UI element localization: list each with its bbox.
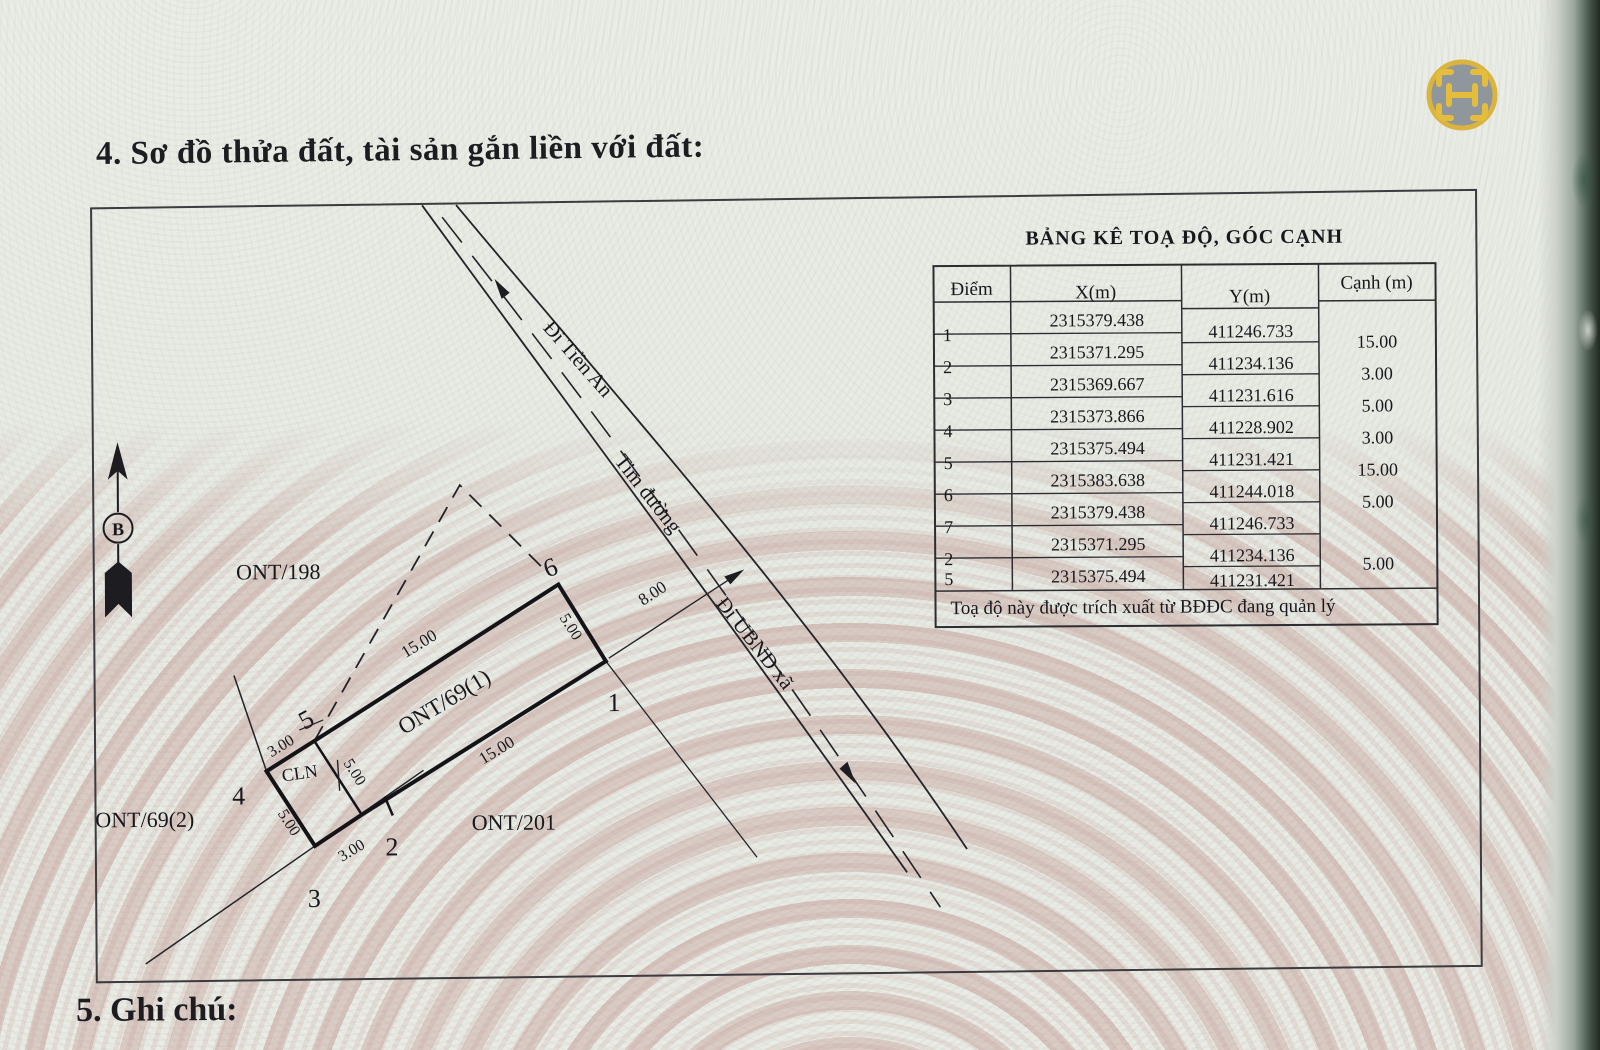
vertex-6: 6 bbox=[539, 552, 561, 584]
parcel-label-ont69-1: ONT/69(1) bbox=[394, 664, 495, 739]
cell-diem: 6 bbox=[944, 485, 953, 505]
cell-y: 411246.733 bbox=[1210, 513, 1295, 534]
vertex-4: 4 bbox=[232, 781, 245, 810]
photo-right-edge bbox=[1538, 0, 1600, 1050]
cell-y: 411231.421 bbox=[1210, 570, 1295, 591]
compass-feather-icon bbox=[105, 562, 131, 616]
vertex-3: 3 bbox=[308, 884, 321, 913]
edge-length: 5.00 bbox=[1362, 395, 1394, 415]
road-label-di-ubnd-xa: Đi UBND xã bbox=[711, 592, 799, 694]
col-header-diem: Điểm bbox=[950, 279, 993, 300]
table-title: BẢNG KÊ TOẠ ĐỘ, GÓC CẠNH bbox=[1025, 224, 1343, 250]
dim-side-5-6: 15.00 bbox=[398, 626, 441, 662]
cell-y: 411228.902 bbox=[1209, 417, 1294, 438]
table-note: Toạ độ này được trích xuất từ BĐĐC đang … bbox=[950, 596, 1336, 619]
dim-side-3-4: 5.00 bbox=[274, 806, 303, 839]
cell-x: 2315371.295 bbox=[1050, 342, 1145, 363]
col-header-x: X(m) bbox=[1075, 282, 1116, 303]
cell-diem: 3 bbox=[943, 389, 952, 409]
scanned-land-certificate-page: 4. Sơ đồ thửa đất, tài sản gắn liền với … bbox=[0, 0, 1600, 1050]
cell-diem: 2 bbox=[944, 549, 953, 569]
table-row: 4 2315373.866 411228.902 bbox=[943, 405, 1294, 441]
table-row: 3 2315369.667 411231.616 bbox=[943, 373, 1294, 409]
cell-y: 411246.733 bbox=[1208, 321, 1293, 342]
table-row: 7 2315379.438 411246.733 bbox=[944, 501, 1295, 537]
road-right-edge bbox=[456, 202, 967, 852]
table-body: 1 2315379.438 411246.733 2 2315371.295 4… bbox=[943, 309, 1295, 592]
table-row: 6 2315383.638 411244.018 bbox=[944, 469, 1295, 505]
compass-north-label: B bbox=[112, 519, 124, 539]
edge-length: 15.00 bbox=[1357, 459, 1398, 479]
dim-setback: 8.00 bbox=[635, 577, 670, 609]
col-header-canh: Cạnh (m) bbox=[1340, 272, 1412, 293]
cell-x: 2315379.438 bbox=[1049, 310, 1144, 331]
cell-y: 411231.421 bbox=[1209, 449, 1294, 470]
parcel-label-ont198: ONT/198 bbox=[236, 559, 320, 585]
parcel-diagram: B bbox=[0, 0, 1600, 1050]
table-row: 1 2315379.438 411246.733 bbox=[943, 309, 1294, 345]
setback-dim-line bbox=[608, 577, 732, 658]
parcel-label-ont69-2: ONT/69(2) bbox=[95, 807, 194, 833]
road-label-di-tien-an: Đi Tiền An bbox=[538, 316, 618, 402]
col-header-y: Y(m) bbox=[1229, 286, 1270, 307]
parcel-label-cln: CLN bbox=[280, 761, 319, 786]
road-label-tim-duong: Tim đường bbox=[610, 450, 687, 539]
table-row: 2 2315371.295 411234.136 bbox=[944, 533, 1295, 569]
table-row: 5 2315375.494 411231.421 bbox=[944, 437, 1295, 473]
edge-length: 5.00 bbox=[1362, 491, 1394, 511]
cell-y: 411231.616 bbox=[1209, 385, 1294, 406]
dim-side-6-1: 5.00 bbox=[556, 611, 585, 644]
cell-diem: 4 bbox=[943, 421, 952, 441]
vertex-1: 1 bbox=[608, 688, 621, 717]
edge-length: 15.00 bbox=[1357, 331, 1398, 351]
vertex-5: 5 bbox=[294, 704, 319, 736]
vertex-2: 2 bbox=[385, 832, 398, 861]
cell-x: 2315375.494 bbox=[1050, 438, 1145, 459]
edge-length: 5.00 bbox=[1362, 553, 1394, 573]
cell-x: 2315371.295 bbox=[1051, 534, 1146, 555]
setback-dim-arrow-icon bbox=[724, 569, 744, 584]
parcel-label-ont201: ONT/201 bbox=[472, 809, 556, 835]
table-edge-lengths: 15.00 3.00 5.00 3.00 15.00 5.00 5.00 bbox=[1357, 331, 1399, 573]
dim-side-2-5: 5.00 bbox=[340, 756, 369, 789]
road-direction-up-arrow-icon bbox=[495, 279, 510, 299]
boundary-from-vertex-1 bbox=[606, 660, 757, 858]
cell-x: 2315379.438 bbox=[1051, 502, 1146, 523]
cell-x: 2315383.638 bbox=[1050, 470, 1145, 491]
boundary-lines bbox=[143, 483, 758, 964]
road-left-edge bbox=[422, 202, 907, 875]
edge-length: 3.00 bbox=[1362, 427, 1394, 447]
edge-length: 3.00 bbox=[1361, 363, 1393, 383]
dim-side-2-3: 3.00 bbox=[335, 836, 368, 865]
cell-diem: 5 bbox=[944, 453, 953, 473]
cell-y: 411234.136 bbox=[1209, 353, 1294, 374]
road-centerline bbox=[442, 214, 940, 910]
road-lines bbox=[422, 202, 967, 910]
cell-y: 411244.018 bbox=[1209, 481, 1294, 502]
cell-x: 2315373.866 bbox=[1050, 406, 1145, 427]
cell-y: 411234.136 bbox=[1210, 545, 1295, 566]
section-5-title: 5. Ghi chú: bbox=[76, 991, 238, 1030]
cell-diem: 5 bbox=[944, 569, 953, 589]
table-row: 2 2315371.295 411234.136 bbox=[943, 341, 1294, 377]
cell-diem: 7 bbox=[944, 517, 953, 537]
boundary-from-vertex-4 bbox=[234, 675, 267, 771]
table-row: 5 2315375.494 411231.421 bbox=[944, 565, 1295, 592]
cell-diem: 1 bbox=[943, 325, 952, 345]
cell-diem: 2 bbox=[943, 357, 952, 377]
cell-x: 2315375.494 bbox=[1051, 566, 1146, 587]
cell-x: 2315369.667 bbox=[1050, 374, 1145, 395]
